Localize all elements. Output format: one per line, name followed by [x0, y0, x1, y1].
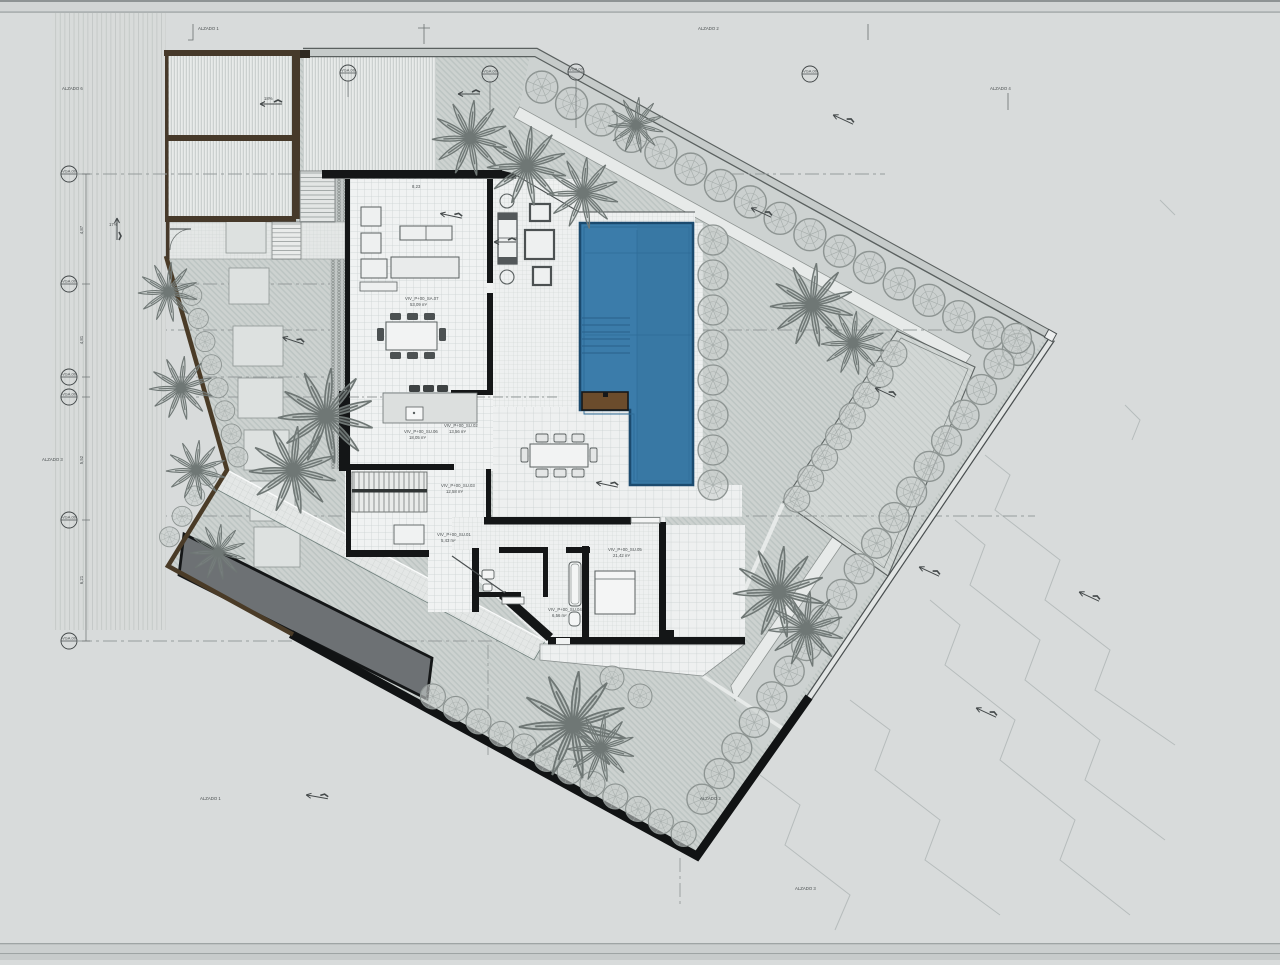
svg-text:13,56 m²: 13,56 m² [449, 429, 467, 434]
svg-text:17%: 17% [109, 222, 118, 227]
svg-text:VIV_P+00_SA.07: VIV_P+00_SA.07 [405, 296, 439, 301]
svg-text:53,09 m²: 53,09 m² [410, 302, 428, 307]
svg-text:VIV_P+00_SU.04: VIV_P+00_SU.04 [548, 607, 582, 612]
svg-text:ALZADO 2: ALZADO 2 [698, 26, 719, 31]
svg-text:ALZADO 6: ALZADO 6 [62, 86, 83, 91]
svg-text:18%: 18% [264, 96, 273, 101]
svg-text:VIV_P+00_SU.05: VIV_P+00_SU.05 [608, 547, 642, 552]
svg-text:12,58 m²: 12,58 m² [446, 489, 464, 494]
svg-text:5,52: 5,52 [79, 455, 84, 464]
svg-text:VIV_P+00_SU.01: VIV_P+00_SU.01 [437, 532, 471, 537]
svg-text:5,43 m²: 5,43 m² [441, 538, 456, 543]
svg-text:ALZADO 4: ALZADO 4 [990, 86, 1011, 91]
svg-text:ALZADO 1: ALZADO 1 [198, 26, 219, 31]
svg-text:21,42 m²: 21,42 m² [613, 553, 631, 558]
svg-text:ALZADO 3: ALZADO 3 [795, 886, 816, 891]
svg-text:ALZADO 2: ALZADO 2 [700, 796, 721, 801]
svg-text:4,81: 4,81 [79, 335, 84, 344]
svg-text:ALZADO 3: ALZADO 3 [42, 457, 63, 462]
svg-text:18,05 m²: 18,05 m² [409, 435, 427, 440]
svg-text:VIV_P+00_SU.06: VIV_P+00_SU.06 [404, 429, 438, 434]
svg-text:ALZADO 1: ALZADO 1 [200, 796, 221, 801]
svg-text:VIV_P+00_SU.02: VIV_P+00_SU.02 [444, 423, 478, 428]
svg-text:6,56 m²: 6,56 m² [552, 613, 567, 618]
svg-text:VIV_P+00_SU.03: VIV_P+00_SU.03 [441, 483, 475, 488]
svg-text:8,23: 8,23 [412, 184, 421, 189]
svg-text:6,21: 6,21 [79, 575, 84, 584]
svg-text:4,87: 4,87 [79, 225, 84, 234]
